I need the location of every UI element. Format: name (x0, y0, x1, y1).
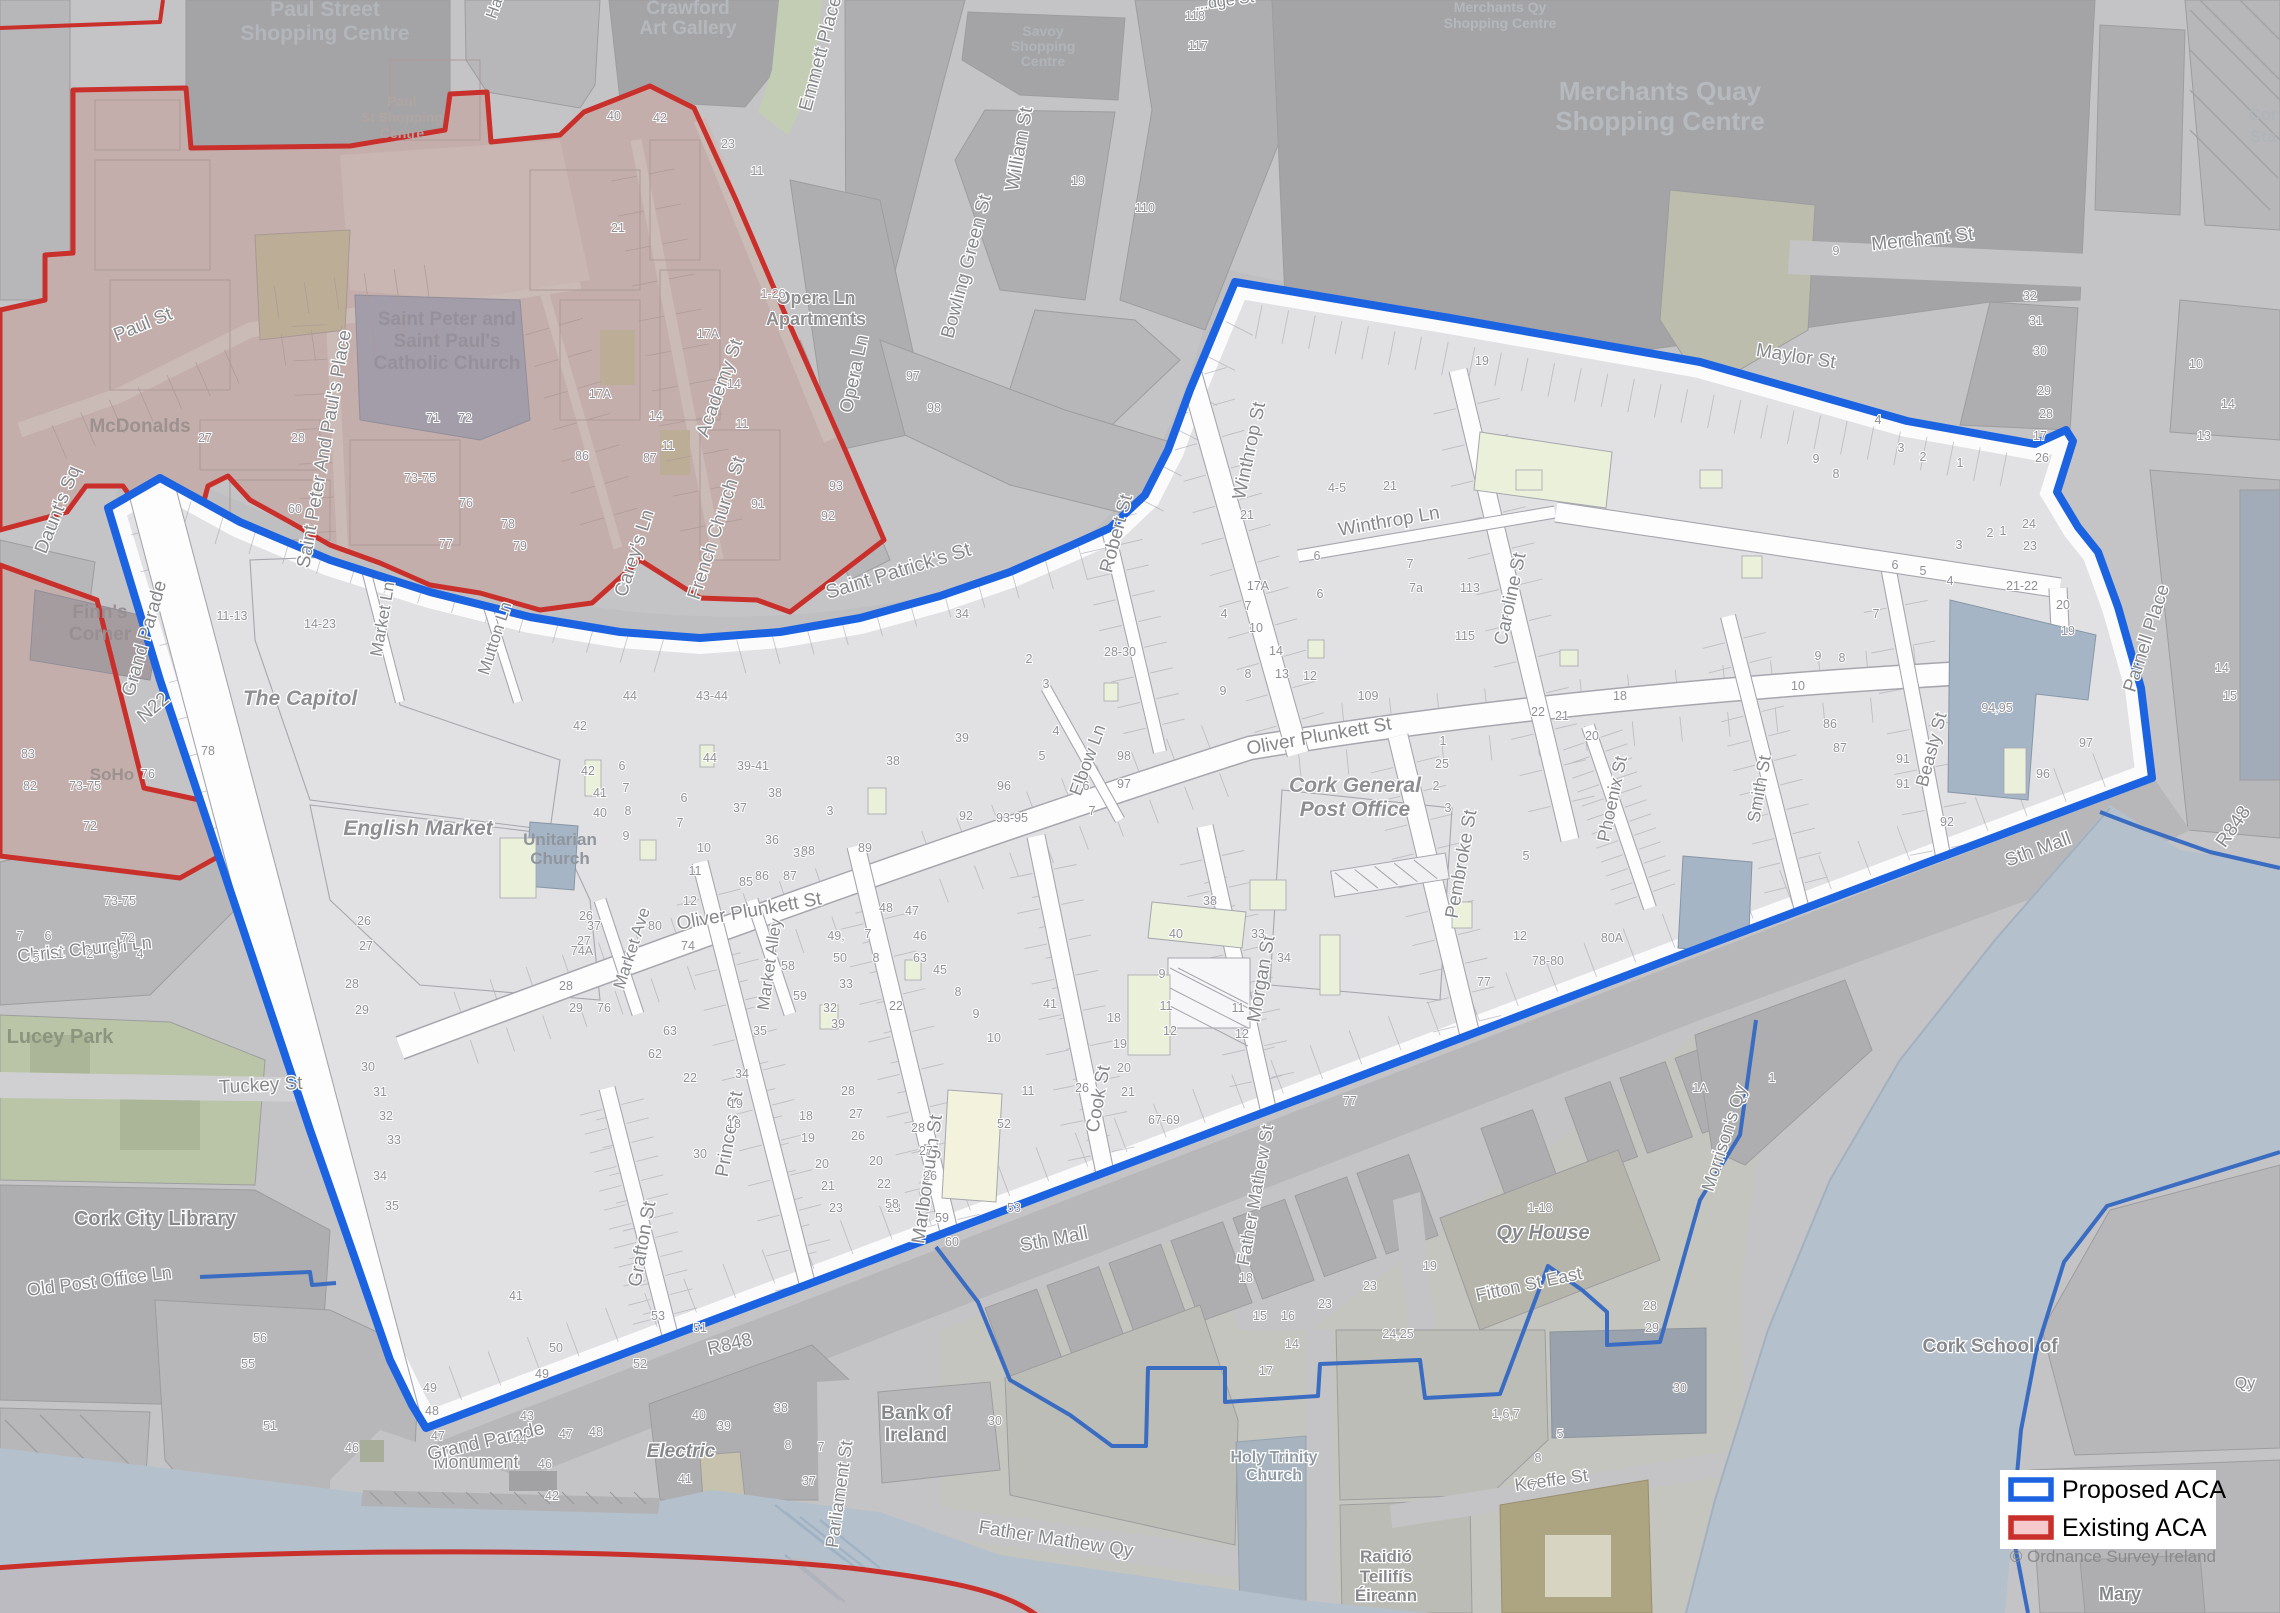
svg-text:23: 23 (1318, 1297, 1332, 1311)
svg-text:Merchants Qy: Merchants Qy (1454, 0, 1547, 15)
svg-text:72: 72 (121, 931, 135, 945)
svg-text:12: 12 (683, 894, 697, 908)
svg-text:42: 42 (581, 764, 595, 778)
svg-text:11: 11 (1022, 1084, 1035, 1098)
svg-text:58: 58 (885, 1197, 899, 1211)
svg-text:46: 46 (345, 1441, 359, 1455)
svg-text:28: 28 (2039, 407, 2053, 421)
svg-text:12: 12 (1513, 929, 1527, 943)
svg-text:14: 14 (727, 377, 741, 391)
svg-text:8: 8 (785, 1438, 792, 1452)
svg-text:51: 51 (263, 1419, 277, 1433)
svg-text:60: 60 (288, 502, 302, 516)
svg-text:19: 19 (1475, 354, 1489, 368)
svg-text:49: 49 (423, 1381, 437, 1395)
svg-text:88: 88 (801, 844, 815, 858)
svg-text:21: 21 (821, 1179, 835, 1193)
svg-text:40: 40 (1169, 927, 1183, 941)
svg-text:34: 34 (735, 1067, 749, 1081)
svg-text:42: 42 (545, 1489, 559, 1503)
svg-text:18: 18 (799, 1109, 813, 1123)
svg-text:39: 39 (831, 1017, 845, 1031)
svg-text:10: 10 (1791, 679, 1805, 693)
svg-text:50: 50 (833, 951, 847, 965)
svg-text:44: 44 (513, 1432, 527, 1446)
svg-text:76: 76 (597, 1001, 611, 1015)
svg-text:77: 77 (1477, 975, 1491, 989)
svg-text:39: 39 (717, 1419, 731, 1433)
svg-text:97: 97 (906, 369, 920, 383)
svg-text:3: 3 (827, 804, 834, 818)
svg-text:14: 14 (2215, 661, 2229, 675)
svg-text:38: 38 (886, 754, 900, 768)
svg-text:26: 26 (851, 1129, 865, 1143)
svg-text:5: 5 (1039, 749, 1046, 763)
svg-text:30: 30 (361, 1060, 375, 1074)
svg-text:97: 97 (1117, 777, 1131, 791)
svg-text:91: 91 (1896, 752, 1910, 766)
svg-text:49,: 49, (827, 929, 844, 943)
svg-text:91: 91 (1896, 777, 1910, 791)
svg-text:28: 28 (291, 431, 305, 445)
svg-text:26: 26 (357, 914, 371, 928)
svg-text:© Ordnance Survey Ireland: © Ordnance Survey Ireland (2010, 1547, 2216, 1566)
svg-text:9: 9 (1220, 684, 1227, 698)
svg-text:5: 5 (1523, 849, 1530, 863)
svg-text:17: 17 (1259, 1364, 1273, 1378)
svg-text:27: 27 (359, 939, 373, 953)
svg-text:40: 40 (692, 1408, 706, 1422)
svg-text:38: 38 (768, 786, 782, 800)
svg-text:6: 6 (1083, 779, 1090, 793)
svg-text:40: 40 (607, 109, 621, 123)
svg-text:39: 39 (955, 731, 969, 745)
svg-text:73-75: 73-75 (404, 471, 436, 485)
svg-text:5: 5 (1920, 564, 1927, 578)
svg-text:86: 86 (575, 449, 589, 463)
svg-text:Lucey Park: Lucey Park (7, 1026, 115, 1048)
svg-text:1: 1 (1440, 734, 1447, 748)
svg-text:85: 85 (739, 875, 753, 889)
svg-text:76: 76 (459, 496, 473, 510)
svg-text:33: 33 (387, 1133, 401, 1147)
svg-text:18: 18 (727, 1117, 741, 1131)
svg-text:Cork School of: Cork School of (1922, 1336, 2058, 1357)
svg-text:80A: 80A (1601, 931, 1624, 945)
svg-text:1,6,7: 1,6,7 (1492, 1407, 1520, 1421)
svg-text:27: 27 (198, 431, 212, 445)
svg-text:28: 28 (911, 1121, 925, 1135)
svg-text:78: 78 (501, 517, 515, 531)
svg-text:20: 20 (2056, 598, 2070, 612)
svg-text:10: 10 (697, 841, 711, 855)
svg-text:Savoy: Savoy (1022, 23, 1063, 39)
svg-text:86: 86 (755, 869, 769, 883)
svg-text:78-80: 78-80 (1532, 954, 1564, 968)
svg-text:86: 86 (1823, 717, 1837, 731)
svg-text:Unitarian: Unitarian (523, 830, 597, 849)
svg-text:3: 3 (1043, 677, 1050, 691)
svg-text:8: 8 (625, 804, 632, 818)
svg-text:87: 87 (643, 451, 657, 465)
svg-text:44: 44 (703, 751, 717, 765)
svg-text:34: 34 (373, 1169, 387, 1183)
svg-text:23: 23 (721, 137, 735, 151)
svg-text:11: 11 (751, 164, 764, 178)
svg-text:13: 13 (2197, 429, 2211, 443)
svg-text:56: 56 (253, 1331, 267, 1345)
svg-text:26: 26 (2035, 451, 2049, 465)
svg-text:4: 4 (1221, 607, 1228, 621)
svg-text:14-23: 14-23 (304, 617, 336, 631)
svg-text:Saint Peter and: Saint Peter and (378, 309, 516, 330)
svg-text:63: 63 (663, 1024, 677, 1038)
svg-text:94,95: 94,95 (1981, 701, 2012, 715)
svg-text:50: 50 (549, 1341, 563, 1355)
svg-text:3: 3 (1956, 538, 1963, 552)
svg-text:19: 19 (1113, 1037, 1127, 1051)
svg-text:98: 98 (927, 401, 941, 415)
svg-text:Cork General: Cork General (1289, 774, 1422, 797)
svg-text:12: 12 (1303, 669, 1317, 683)
svg-text:Paul Street: Paul Street (270, 0, 380, 21)
svg-text:20: 20 (869, 1154, 883, 1168)
svg-text:1-18: 1-18 (1527, 1201, 1552, 1215)
svg-text:17A: 17A (589, 387, 612, 401)
svg-text:28-30: 28-30 (1104, 645, 1136, 659)
svg-text:52: 52 (633, 1357, 647, 1371)
svg-text:Opera Ln: Opera Ln (776, 288, 855, 308)
svg-text:9: 9 (973, 1007, 980, 1021)
svg-text:1: 1 (1957, 456, 1964, 470)
svg-text:7: 7 (1531, 1479, 1538, 1493)
svg-text:19: 19 (801, 1131, 815, 1145)
svg-text:73-75: 73-75 (104, 894, 136, 908)
svg-text:29: 29 (2037, 384, 2051, 398)
svg-text:22: 22 (683, 1071, 697, 1085)
svg-text:9: 9 (1815, 649, 1822, 663)
svg-text:English Market: English Market (343, 817, 493, 840)
svg-text:9: 9 (1159, 967, 1166, 981)
svg-text:2: 2 (87, 947, 94, 961)
svg-text:41: 41 (1043, 997, 1057, 1011)
svg-text:2: 2 (1026, 652, 1033, 666)
svg-text:17: 17 (2033, 429, 2047, 443)
svg-text:Paul: Paul (387, 93, 417, 109)
svg-text:60: 60 (945, 1235, 959, 1249)
svg-text:5: 5 (33, 951, 40, 965)
svg-text:78: 78 (201, 744, 215, 758)
svg-text:24,25: 24,25 (1382, 1327, 1413, 1341)
svg-text:44: 44 (623, 689, 637, 703)
svg-text:62: 62 (648, 1047, 662, 1061)
svg-text:Ireland: Ireland (885, 1425, 947, 1446)
svg-text:2: 2 (1920, 450, 1927, 464)
svg-text:28: 28 (841, 1084, 855, 1098)
svg-text:48: 48 (589, 1425, 603, 1439)
svg-text:Mary: Mary (2099, 1584, 2141, 1604)
svg-text:21: 21 (1383, 479, 1397, 493)
svg-text:28: 28 (559, 979, 573, 993)
svg-text:1: 1 (1769, 1071, 1776, 1085)
svg-text:Qy: Qy (2235, 1375, 2255, 1392)
svg-text:8: 8 (955, 985, 962, 999)
svg-text:27: 27 (849, 1107, 863, 1121)
svg-text:5: 5 (1557, 1427, 1564, 1441)
svg-text:24: 24 (2022, 517, 2036, 531)
svg-text:7: 7 (1089, 804, 1096, 818)
svg-text:52: 52 (997, 1117, 1011, 1131)
svg-text:Sta: Sta (2250, 127, 2277, 146)
svg-text:3: 3 (1898, 441, 1905, 455)
svg-text:92: 92 (821, 509, 835, 523)
svg-text:73-75: 73-75 (69, 779, 101, 793)
svg-text:11: 11 (1232, 1001, 1245, 1015)
svg-text:1-26: 1-26 (760, 287, 785, 301)
svg-text:1: 1 (2000, 524, 2007, 538)
svg-text:92: 92 (959, 809, 973, 823)
svg-text:37: 37 (802, 1474, 816, 1488)
svg-text:17A: 17A (1247, 579, 1270, 593)
svg-text:Saint Paul's: Saint Paul's (394, 331, 501, 352)
svg-text:49: 49 (535, 1367, 549, 1381)
svg-text:Bank of: Bank of (881, 1403, 951, 1424)
svg-text:18: 18 (1239, 1271, 1253, 1285)
svg-text:42: 42 (573, 719, 587, 733)
svg-text:46: 46 (913, 929, 927, 943)
svg-text:22: 22 (889, 999, 903, 1013)
svg-text:31: 31 (373, 1085, 387, 1099)
svg-text:7: 7 (818, 1440, 825, 1454)
svg-text:55: 55 (241, 1357, 255, 1371)
svg-text:22: 22 (877, 1177, 891, 1191)
svg-text:8: 8 (1833, 467, 1840, 481)
svg-text:47: 47 (431, 1429, 445, 1443)
svg-text:32: 32 (2023, 289, 2037, 303)
svg-text:7a: 7a (1409, 581, 1423, 595)
svg-text:Cork City Library: Cork City Library (74, 1208, 237, 1230)
svg-text:14: 14 (2221, 397, 2235, 411)
svg-text:20: 20 (1117, 1061, 1131, 1075)
svg-text:38: 38 (1203, 894, 1217, 908)
svg-text:6: 6 (681, 791, 688, 805)
svg-text:12: 12 (1163, 1024, 1177, 1038)
svg-text:Cor: Cor (2248, 105, 2278, 124)
svg-text:4: 4 (1053, 724, 1060, 738)
svg-text:29: 29 (1645, 1321, 1659, 1335)
svg-text:19: 19 (729, 1097, 743, 1111)
svg-text:17A: 17A (697, 327, 720, 341)
svg-text:St Shopping: St Shopping (361, 109, 443, 125)
svg-text:110: 110 (1135, 201, 1155, 215)
svg-text:Crawford: Crawford (646, 0, 729, 19)
svg-text:82: 82 (23, 779, 37, 793)
svg-text:7: 7 (1407, 557, 1414, 571)
svg-text:33: 33 (839, 977, 853, 991)
svg-text:7: 7 (1245, 599, 1252, 613)
svg-text:79: 79 (513, 539, 527, 553)
svg-text:27: 27 (577, 934, 591, 948)
svg-text:28: 28 (345, 977, 359, 991)
svg-text:15: 15 (1253, 1309, 1267, 1323)
svg-text:38: 38 (774, 1401, 788, 1415)
svg-text:30: 30 (2033, 344, 2047, 358)
svg-text:8: 8 (1535, 1451, 1542, 1465)
svg-text:48: 48 (425, 1404, 439, 1418)
svg-text:53: 53 (651, 1309, 665, 1323)
svg-text:42: 42 (653, 111, 667, 125)
svg-text:10: 10 (987, 1031, 1001, 1045)
svg-text:67-69: 67-69 (1148, 1113, 1180, 1127)
svg-text:26: 26 (1075, 1081, 1089, 1095)
svg-text:7: 7 (677, 816, 684, 830)
svg-text:89: 89 (858, 841, 872, 855)
svg-text:Qy House: Qy House (1496, 1222, 1589, 1244)
svg-text:6: 6 (1314, 549, 1321, 563)
svg-text:29: 29 (569, 1001, 583, 1015)
svg-text:2: 2 (1433, 779, 1440, 793)
svg-text:16: 16 (1281, 1309, 1295, 1323)
svg-text:51: 51 (693, 1321, 707, 1335)
svg-text:12: 12 (1235, 1027, 1249, 1041)
svg-text:59: 59 (793, 989, 807, 1003)
svg-text:33: 33 (1251, 927, 1265, 941)
svg-text:19: 19 (2061, 624, 2075, 638)
svg-text:11: 11 (1160, 999, 1173, 1013)
svg-text:23: 23 (1363, 1279, 1377, 1293)
svg-text:Corner: Corner (69, 624, 132, 645)
svg-text:Teilifís: Teilifís (1360, 1567, 1413, 1586)
svg-text:9: 9 (623, 829, 630, 843)
svg-text:4: 4 (1947, 574, 1954, 588)
svg-text:14: 14 (1269, 644, 1283, 658)
svg-text:29: 29 (355, 1003, 369, 1017)
svg-text:87: 87 (783, 869, 797, 883)
svg-text:19: 19 (1071, 174, 1085, 188)
svg-text:13: 13 (1275, 667, 1289, 681)
svg-text:15: 15 (2223, 689, 2237, 703)
svg-text:25: 25 (1435, 757, 1449, 771)
svg-text:Holy Trinity: Holy Trinity (1230, 1449, 1317, 1466)
svg-text:Apartments: Apartments (766, 309, 866, 329)
svg-text:35: 35 (385, 1199, 399, 1213)
svg-text:Shopping: Shopping (1011, 38, 1076, 54)
svg-text:14: 14 (1285, 1337, 1299, 1351)
svg-text:7: 7 (1873, 607, 1880, 621)
svg-text:118: 118 (1185, 9, 1205, 23)
svg-text:6: 6 (45, 929, 52, 943)
svg-text:21: 21 (1121, 1085, 1135, 1099)
svg-text:2: 2 (1987, 526, 1994, 540)
svg-text:11: 11 (689, 864, 702, 878)
svg-text:20: 20 (815, 1157, 829, 1171)
svg-text:97: 97 (2079, 736, 2093, 750)
svg-text:1A: 1A (1692, 1081, 1708, 1095)
svg-text:93: 93 (829, 479, 843, 493)
svg-text:Church: Church (530, 849, 590, 868)
svg-text:93-95: 93-95 (996, 811, 1028, 825)
svg-text:Merchants Quay: Merchants Quay (1559, 76, 1762, 106)
svg-text:Electric: Electric (647, 1441, 716, 1462)
svg-text:Finn's: Finn's (72, 602, 127, 623)
svg-text:115: 115 (1455, 629, 1475, 643)
svg-text:3: 3 (1445, 801, 1452, 815)
svg-text:Shopping Centre: Shopping Centre (1555, 106, 1764, 136)
svg-text:53: 53 (1007, 1201, 1021, 1215)
svg-text:76: 76 (141, 767, 155, 781)
svg-text:41: 41 (678, 1472, 692, 1486)
svg-text:8: 8 (1839, 651, 1846, 665)
svg-text:96: 96 (997, 779, 1011, 793)
svg-text:14: 14 (649, 409, 663, 423)
svg-text:39-41: 39-41 (737, 759, 769, 773)
svg-text:3: 3 (112, 947, 119, 961)
svg-text:4-5: 4-5 (1328, 481, 1346, 495)
svg-text:23: 23 (829, 1201, 843, 1215)
svg-text:8: 8 (873, 951, 880, 965)
svg-text:Raidió: Raidió (1360, 1547, 1412, 1566)
svg-text:Centre: Centre (380, 125, 425, 141)
svg-text:43: 43 (520, 1409, 534, 1423)
svg-text:21-22: 21-22 (2006, 579, 2038, 593)
svg-text:7: 7 (865, 927, 872, 941)
svg-text:Catholic Church: Catholic Church (374, 353, 521, 374)
svg-text:41: 41 (593, 786, 607, 800)
svg-text:11: 11 (662, 439, 675, 453)
svg-text:32: 32 (823, 1001, 837, 1015)
svg-text:19: 19 (1423, 1259, 1437, 1273)
svg-text:The Capitol: The Capitol (243, 687, 358, 710)
svg-text:41: 41 (509, 1289, 523, 1303)
svg-text:8: 8 (1245, 667, 1252, 681)
svg-text:40: 40 (593, 806, 607, 820)
svg-text:43-44: 43-44 (696, 689, 728, 703)
svg-text:6: 6 (619, 759, 626, 773)
svg-text:31: 31 (2029, 314, 2043, 328)
svg-text:34: 34 (1277, 951, 1291, 965)
svg-text:26: 26 (923, 1169, 937, 1183)
svg-text:91: 91 (751, 497, 765, 511)
svg-text:4: 4 (1875, 413, 1882, 427)
svg-text:Shopping Centre: Shopping Centre (1444, 15, 1557, 31)
svg-text:10: 10 (2189, 357, 2203, 371)
svg-text:9: 9 (1813, 452, 1820, 466)
svg-text:4: 4 (137, 947, 144, 961)
svg-text:22: 22 (1531, 705, 1545, 719)
svg-text:Centre: Centre (1021, 53, 1066, 69)
svg-text:63: 63 (913, 951, 927, 965)
svg-text:72: 72 (458, 411, 472, 425)
svg-text:Existing ACA: Existing ACA (2062, 1514, 2207, 1542)
svg-text:30: 30 (1673, 1381, 1687, 1395)
svg-text:28: 28 (1643, 1299, 1657, 1313)
svg-text:47: 47 (559, 1427, 573, 1441)
svg-text:7: 7 (17, 929, 24, 943)
svg-text:11: 11 (736, 417, 749, 431)
svg-text:58: 58 (781, 959, 795, 973)
svg-text:26: 26 (579, 909, 593, 923)
svg-text:47: 47 (905, 904, 919, 918)
svg-text:46: 46 (538, 1457, 552, 1471)
svg-text:27: 27 (919, 1144, 933, 1158)
svg-text:21: 21 (1240, 508, 1254, 522)
svg-text:48: 48 (879, 901, 893, 915)
svg-text:32: 32 (379, 1109, 393, 1123)
svg-text:59: 59 (935, 1211, 949, 1225)
svg-text:Proposed ACA: Proposed ACA (2062, 1476, 2226, 1504)
svg-text:37: 37 (733, 801, 747, 815)
svg-text:6: 6 (1317, 587, 1324, 601)
